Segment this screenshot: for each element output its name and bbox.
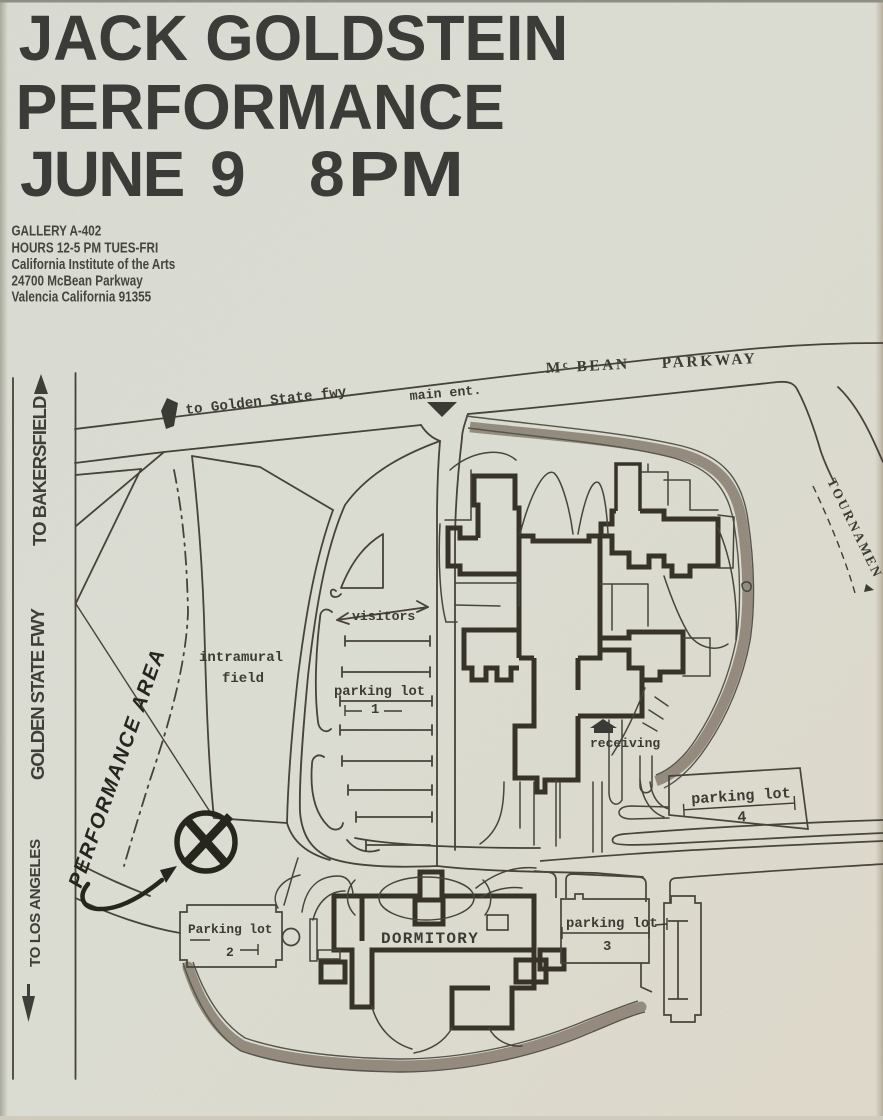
svg-text:DORMITORY: DORMITORY	[381, 930, 479, 948]
svg-text:PM: PM	[348, 139, 464, 210]
svg-text:parking lot: parking lot	[334, 684, 425, 700]
svg-text:4: 4	[737, 808, 747, 827]
svg-text:parking lot: parking lot	[566, 916, 658, 932]
svg-text:3: 3	[603, 939, 611, 955]
svg-text:GALLERY A-402: GALLERY A-402	[11, 222, 101, 239]
svg-text:9: 9	[210, 138, 246, 210]
svg-text:TO BAKERSFIELD: TO BAKERSFIELD	[29, 396, 50, 546]
svg-text:GOLDEN STATE FWY: GOLDEN STATE FWY	[27, 607, 48, 780]
svg-text:intramural: intramural	[199, 650, 283, 666]
svg-text:Valencia California 91355: Valencia California 91355	[11, 288, 151, 305]
svg-text:California Institute of the Ar: California Institute of the Arts	[11, 256, 175, 273]
svg-text:field: field	[222, 671, 264, 687]
svg-text:receiving: receiving	[590, 736, 660, 751]
svg-text:Parking lot: Parking lot	[188, 922, 272, 937]
svg-text:HOURS 12-5 PM TUES-FRI: HOURS 12-5 PM TUES-FRI	[11, 239, 158, 256]
svg-text:24700 McBean Parkway: 24700 McBean Parkway	[11, 272, 143, 289]
svg-text:JACK GOLDSTEIN: JACK GOLDSTEIN	[19, 3, 569, 74]
svg-text:2: 2	[226, 945, 234, 960]
svg-text:TO LOS ANGELES: TO LOS ANGELES	[27, 839, 44, 967]
svg-text:1: 1	[371, 703, 379, 718]
svg-text:visitors: visitors	[352, 609, 415, 624]
svg-text:PERFORMANCE: PERFORMANCE	[16, 72, 505, 143]
svg-text:JUNE: JUNE	[20, 138, 184, 210]
svg-text:8: 8	[309, 138, 345, 210]
